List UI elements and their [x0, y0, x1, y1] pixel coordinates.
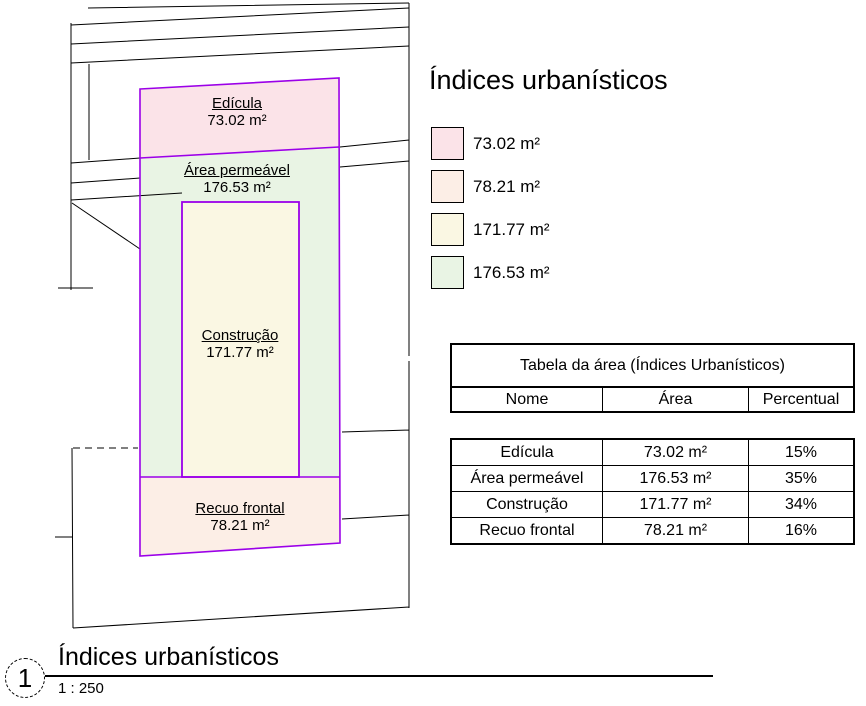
- legend-swatch-green: [431, 256, 464, 289]
- cell-nome: Área permeável: [452, 466, 602, 491]
- cell-nome: Construção: [452, 492, 602, 517]
- cell-area: 73.02 m²: [602, 440, 748, 465]
- legend-item: 171.77 m²: [431, 213, 550, 246]
- legend-item-label: 176.53 m²: [473, 263, 550, 283]
- drawing-sheet: Edícula 73.02 m² Área permeável 176.53 m…: [0, 0, 866, 706]
- column-header-area: Área: [602, 388, 748, 411]
- region-name: Construção: [202, 327, 279, 344]
- view-scale: 1 : 250: [58, 680, 104, 697]
- region-name: Área permeável: [184, 162, 290, 179]
- cell-area: 78.21 m²: [602, 518, 748, 543]
- view-title-underline: [45, 675, 713, 677]
- region-name: Edícula: [207, 95, 266, 112]
- region-label-edicula: Edícula 73.02 m²: [207, 95, 266, 129]
- cell-nome: Recuo frontal: [452, 518, 602, 543]
- legend-item: 176.53 m²: [431, 256, 550, 289]
- view-number: 1: [18, 663, 32, 694]
- region-area: 78.21 m²: [195, 517, 284, 534]
- column-header-nome: Nome: [452, 388, 602, 411]
- cell-percentual: 15%: [748, 440, 853, 465]
- region-area: 176.53 m²: [184, 179, 290, 196]
- table-row: Edícula 73.02 m² 15%: [452, 440, 853, 465]
- column-header-percentual: Percentual: [748, 388, 853, 411]
- legend-item: 78.21 m²: [431, 170, 540, 203]
- legend-swatch-cream: [431, 213, 464, 246]
- area-table-column-row: Nome Área Percentual: [452, 388, 853, 411]
- cell-percentual: 35%: [748, 466, 853, 491]
- table-row: Recuo frontal 78.21 m² 16%: [452, 517, 853, 543]
- region-label-recuo-frontal: Recuo frontal 78.21 m²: [195, 500, 284, 534]
- legend-swatch-peach: [431, 170, 464, 203]
- legend-item-label: 78.21 m²: [473, 177, 540, 197]
- area-table-body: Edícula 73.02 m² 15% Área permeável 176.…: [450, 438, 855, 545]
- legend-item-label: 171.77 m²: [473, 220, 550, 240]
- cell-area: 176.53 m²: [602, 466, 748, 491]
- region-name: Recuo frontal: [195, 500, 284, 517]
- legend-item: 73.02 m²: [431, 127, 540, 160]
- cell-percentual: 16%: [748, 518, 853, 543]
- table-row: Construção 171.77 m² 34%: [452, 491, 853, 517]
- region-label-construcao: Construção 171.77 m²: [202, 327, 279, 361]
- legend-title: Índices urbanísticos: [429, 66, 668, 96]
- cell-nome: Edícula: [452, 440, 602, 465]
- cell-area: 171.77 m²: [602, 492, 748, 517]
- view-title: Índices urbanísticos: [58, 643, 279, 672]
- legend-swatch-pink: [431, 127, 464, 160]
- legend-item-label: 73.02 m²: [473, 134, 540, 154]
- region-area: 73.02 m²: [207, 112, 266, 129]
- view-number-bubble: 1: [5, 658, 45, 698]
- table-row: Área permeável 176.53 m² 35%: [452, 465, 853, 491]
- cell-percentual: 34%: [748, 492, 853, 517]
- area-table-header: Tabela da área (Índices Urbanísticos) No…: [450, 343, 855, 413]
- area-table-title: Tabela da área (Índices Urbanísticos): [452, 345, 853, 388]
- region-label-area-permeavel: Área permeável 176.53 m²: [184, 162, 290, 196]
- region-area: 171.77 m²: [202, 344, 279, 361]
